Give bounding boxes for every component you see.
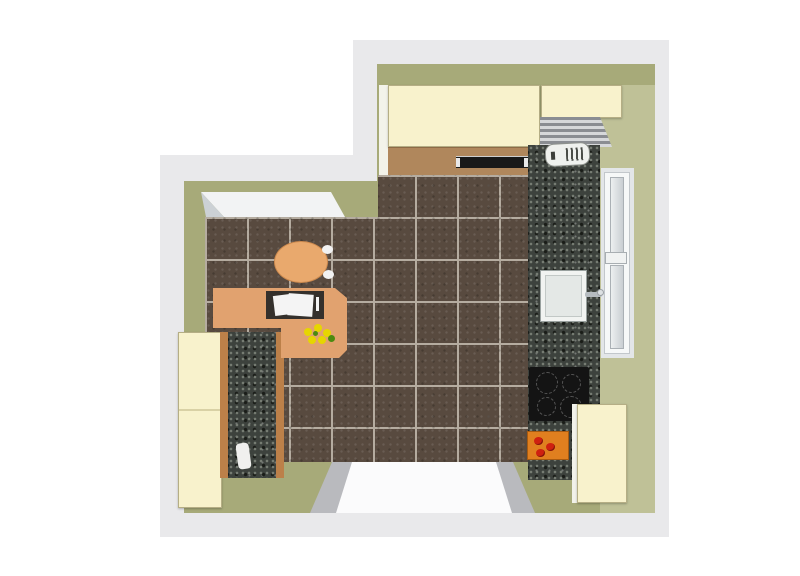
window-sash-top [610, 177, 624, 253]
leaf [313, 331, 318, 336]
flower [318, 336, 326, 344]
desk-tray [266, 291, 324, 319]
leaf [328, 335, 335, 342]
boiler-appliance [544, 142, 590, 167]
tall-cabinet-bottom-right [577, 404, 627, 503]
paper [287, 293, 313, 317]
chair-armrest [323, 270, 334, 279]
dark-appliance-strip [456, 156, 528, 168]
wall-cabinet-small [541, 85, 622, 118]
tomato [546, 443, 555, 451]
strip-end-cap [456, 158, 460, 167]
cabinet-seam [179, 409, 221, 411]
wall-cabinet-large [388, 85, 540, 147]
window-sash-bottom [610, 265, 624, 349]
boiler-grille [566, 147, 584, 161]
flowers [300, 322, 336, 346]
kitchen-sink [540, 270, 587, 322]
tomato [534, 437, 543, 445]
floorplan-stage [0, 0, 800, 576]
burner [536, 372, 558, 394]
sink-basin [545, 275, 582, 317]
cutting-board [527, 431, 569, 460]
flower [308, 336, 316, 344]
window-handle [605, 252, 627, 264]
cabinet-side-panel [379, 85, 388, 175]
granite-counter-left [228, 332, 276, 478]
faucet-knob [597, 289, 604, 296]
tomato [536, 449, 545, 457]
burner [562, 374, 581, 393]
chair-armrest [322, 245, 333, 254]
flower [304, 328, 312, 336]
boiler-indicator [551, 152, 555, 160]
paper [316, 297, 319, 311]
burner [537, 397, 556, 416]
round-chair [274, 241, 328, 283]
counter-wood-edge [220, 332, 228, 478]
tall-cabinet-left [178, 332, 222, 508]
